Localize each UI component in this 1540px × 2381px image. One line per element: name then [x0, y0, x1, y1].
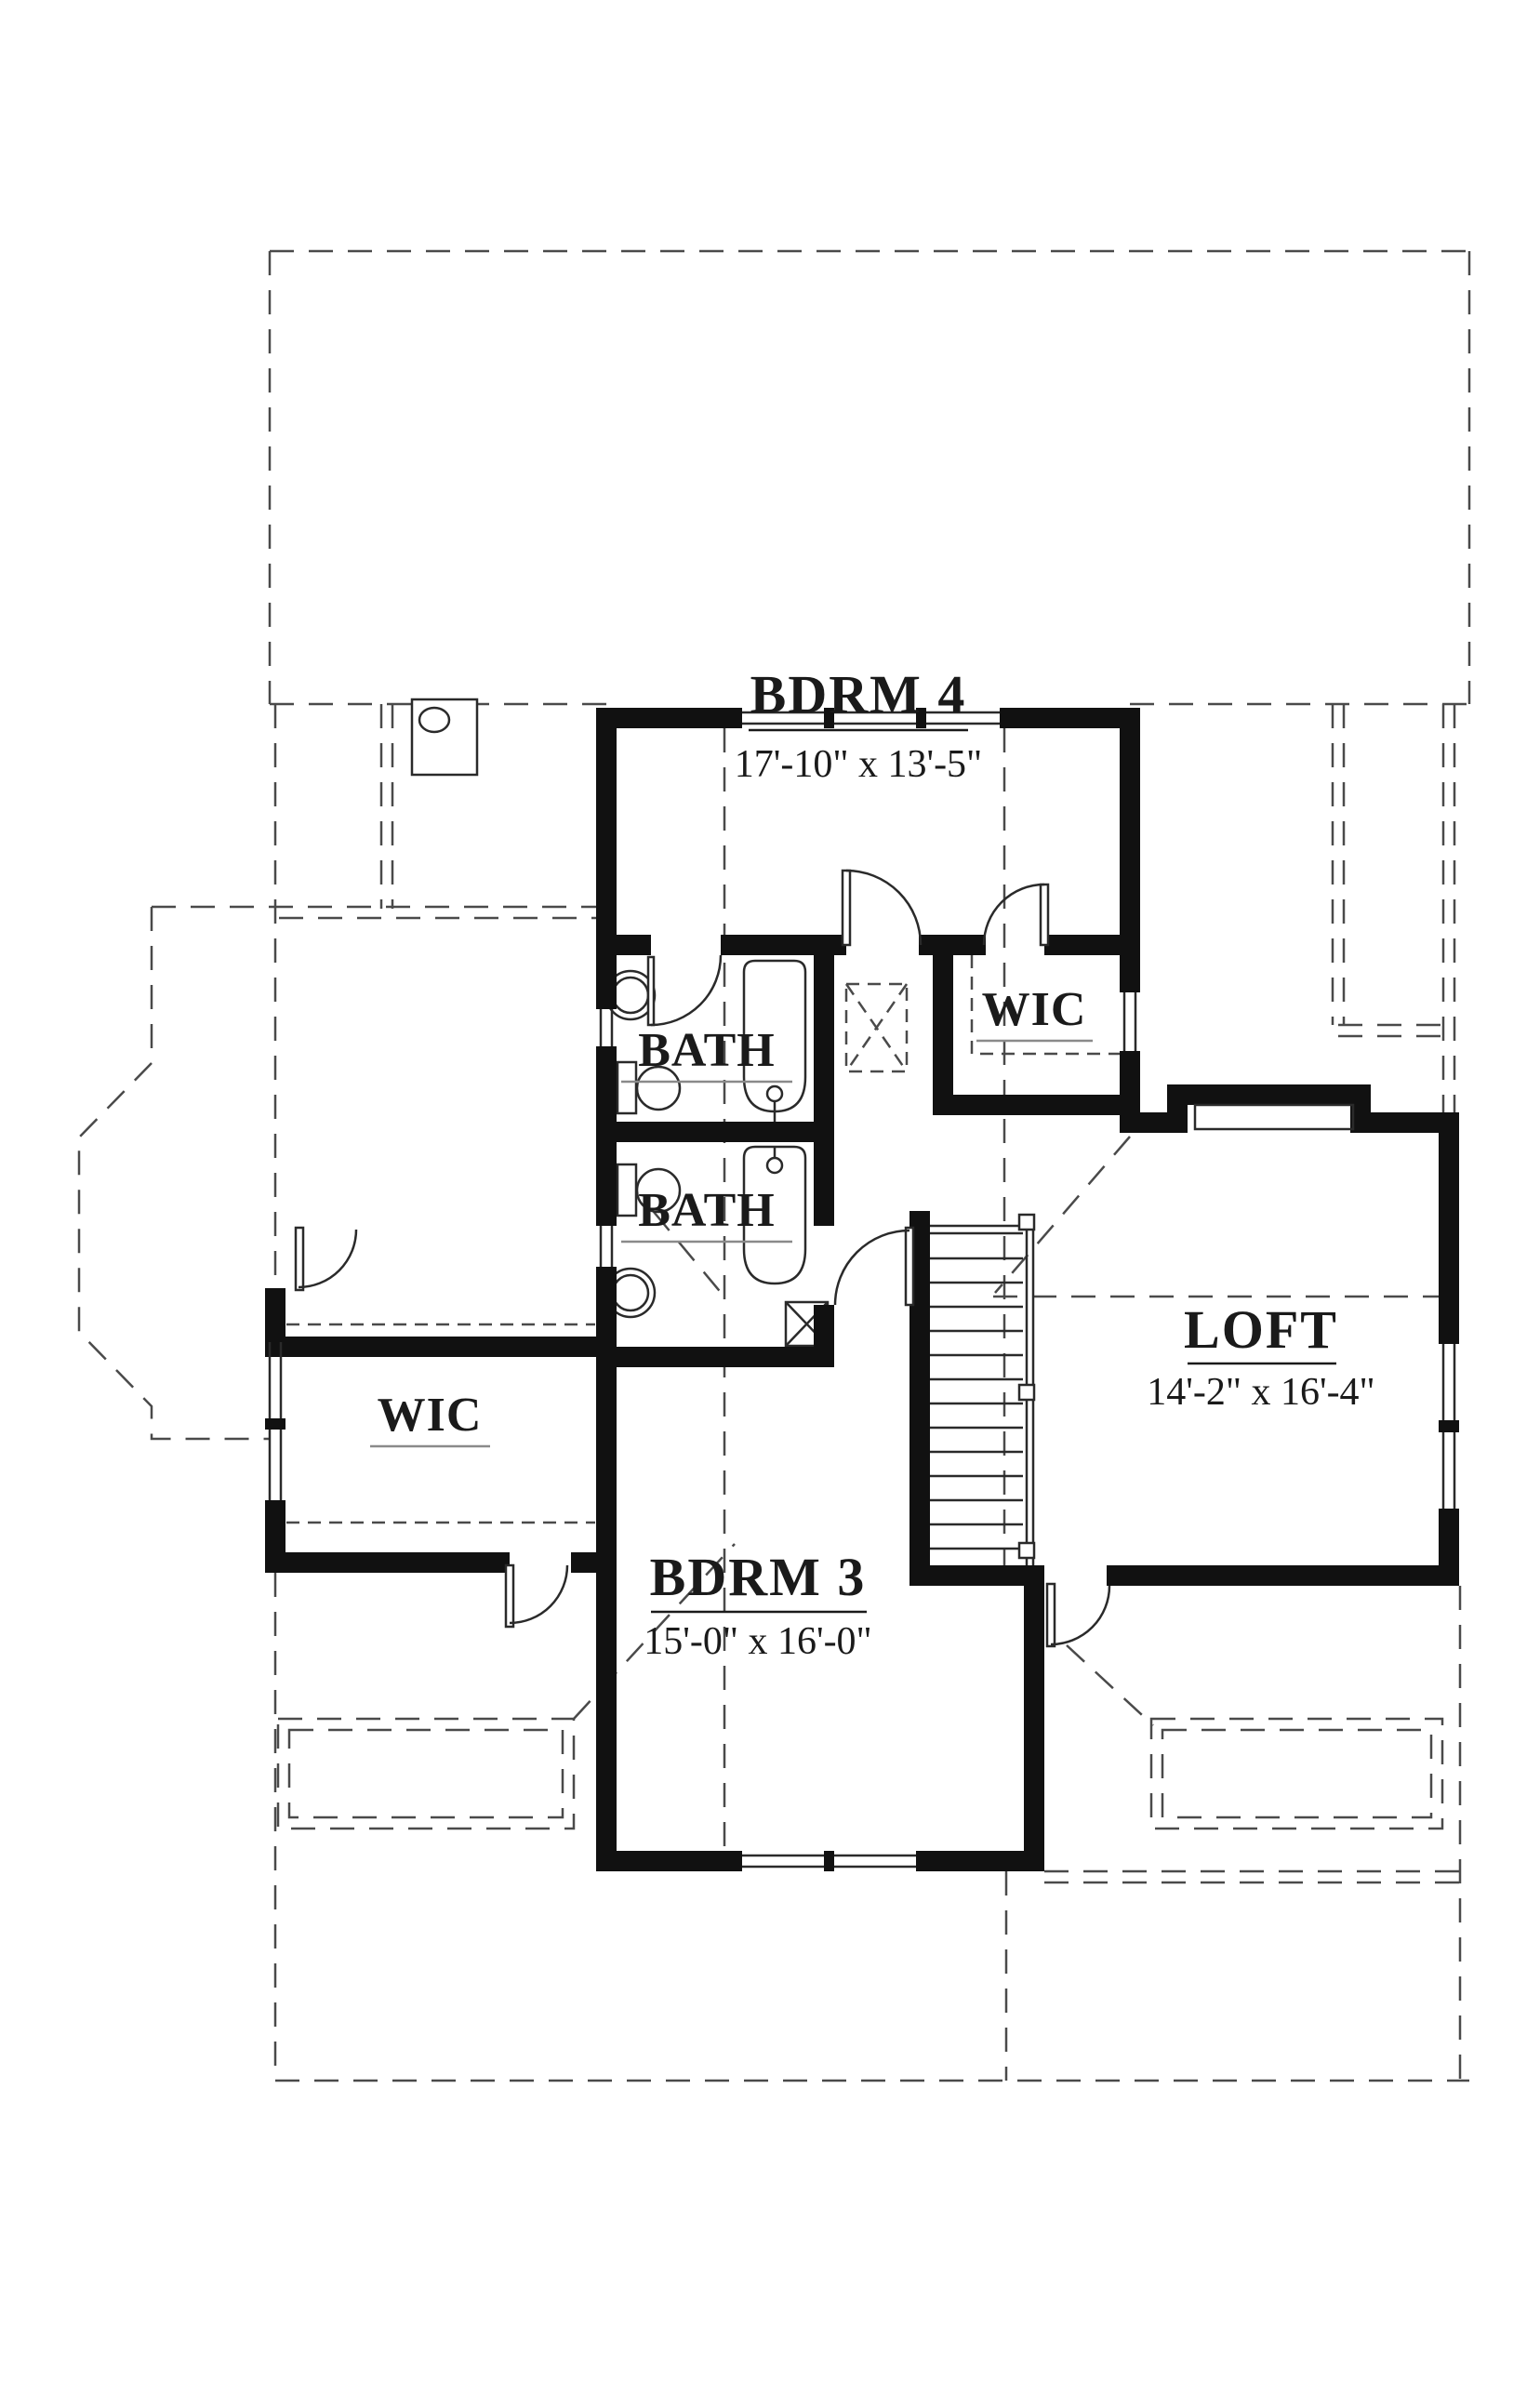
room-label-wic-upper: WIC — [982, 983, 1087, 1036]
door-bath-lower — [835, 1228, 913, 1305]
floor-plan-drawing: BDRM 4 17'-10" x 13'-5" BATH WIC BATH WI… — [0, 0, 1540, 2381]
room-dims-bdrm3: 15'-0" x 16'-0" — [644, 1620, 871, 1663]
window — [1124, 992, 1135, 1051]
lower-attic-outline — [275, 1573, 1469, 2081]
room-labels: BDRM 4 17'-10" x 13'-5" BATH WIC BATH WI… — [370, 664, 1375, 1663]
room-label-bath-upper: BATH — [638, 1024, 776, 1077]
room-label-bdrm4: BDRM 4 — [750, 664, 967, 725]
windows — [270, 712, 1454, 1867]
bay-window-roof-outline — [79, 907, 270, 1439]
room-dims-bdrm4: 17'-10" x 13'-5" — [735, 743, 982, 786]
room-label-bdrm3: BDRM 3 — [650, 1547, 867, 1607]
window — [1443, 1432, 1454, 1509]
window — [1443, 1344, 1454, 1420]
room-label-wic-lower: WIC — [378, 1389, 483, 1442]
window — [742, 1856, 824, 1867]
window — [601, 1226, 612, 1267]
door-bath-upper — [648, 955, 721, 1025]
window — [834, 1856, 916, 1867]
chimney — [412, 699, 477, 775]
door-wic-upper — [984, 885, 1048, 945]
room-dims-loft: 14'-2" x 16'-4" — [1147, 1371, 1374, 1414]
door-left-hall — [296, 1228, 356, 1290]
door-wic-lower — [506, 1565, 567, 1627]
attic-access-box — [846, 984, 907, 1071]
door-bdrm4-entry — [843, 871, 921, 945]
room-label-loft: LOFT — [1184, 1299, 1338, 1360]
window — [270, 1430, 281, 1500]
door-bdrm3-from-hall — [1047, 1584, 1109, 1646]
loft-niche — [1195, 1105, 1353, 1129]
window — [601, 1009, 612, 1046]
walls — [265, 708, 1459, 1871]
floor-plan-page: BDRM 4 17'-10" x 13'-5" BATH WIC BATH WI… — [0, 0, 1540, 2381]
room-label-bath-lower: BATH — [638, 1184, 776, 1237]
stair-treads — [930, 1226, 1023, 1549]
bath-lower-fixtures — [606, 1147, 828, 1346]
stair-railing — [1019, 1215, 1034, 1565]
